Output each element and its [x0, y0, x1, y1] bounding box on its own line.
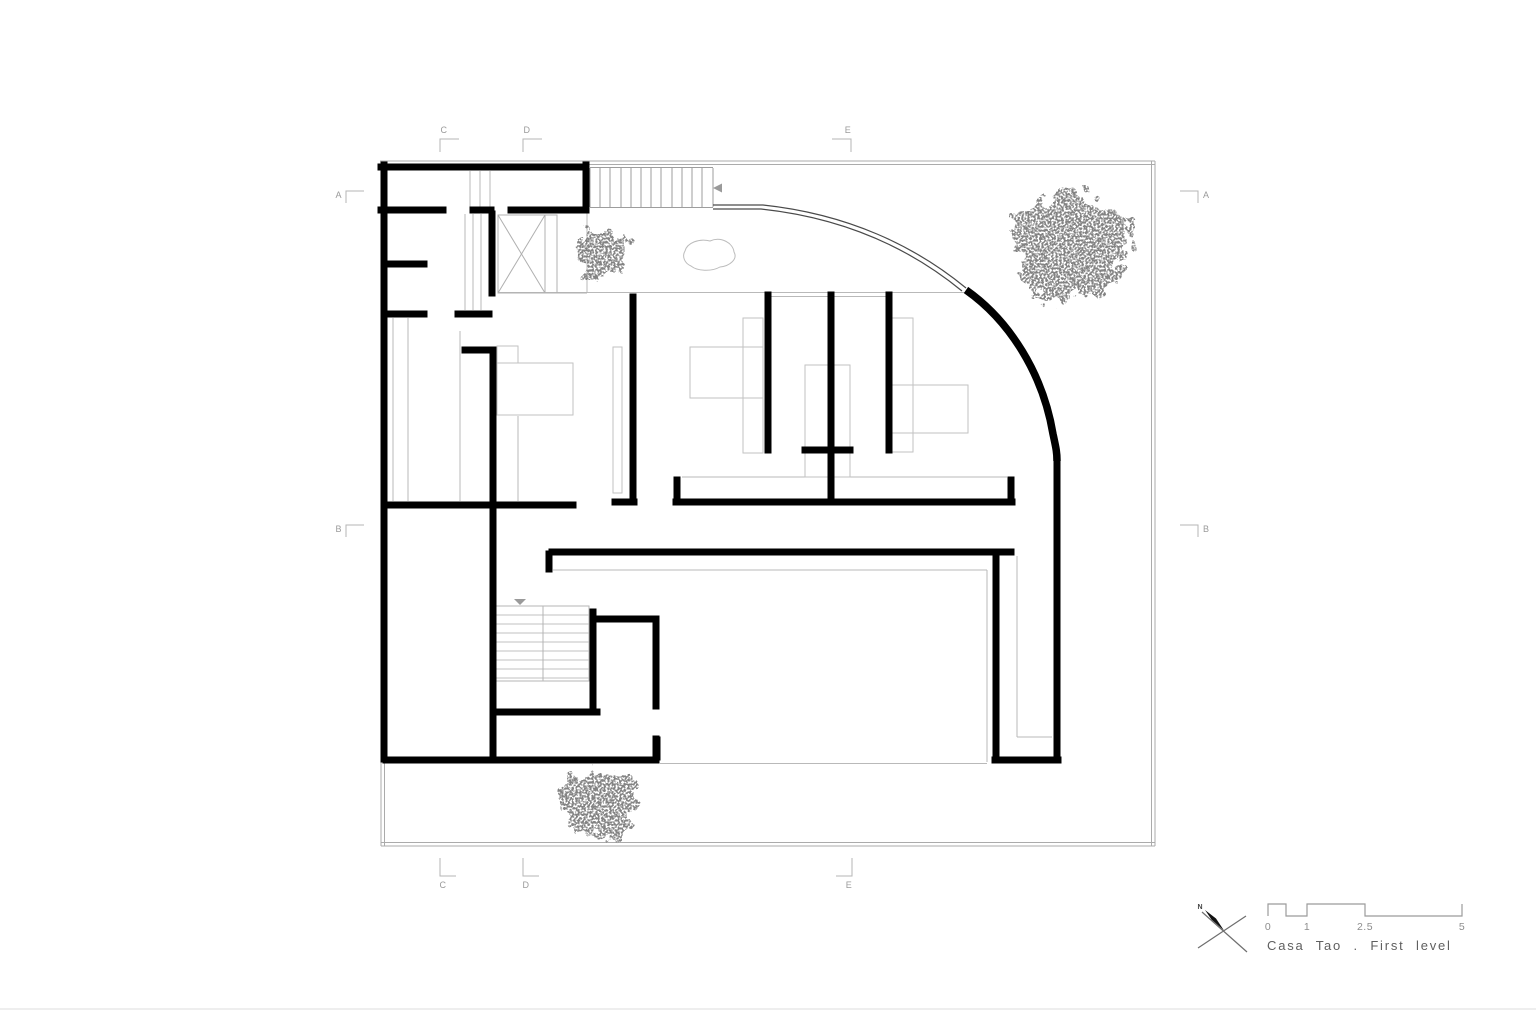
- closet-lines-mid: [465, 214, 481, 310]
- scale-tick: 2.5: [1357, 921, 1373, 933]
- floor-plan-svg: C D E C D E A B: [0, 0, 1536, 1011]
- stone-outline: [684, 239, 735, 270]
- furniture-rect: [613, 347, 622, 493]
- grid-marker-bottom-d: D: [523, 858, 540, 890]
- bath-fixture-rect: [497, 363, 573, 415]
- site-edge-left-lower: [381, 762, 385, 846]
- scale-tick: 1: [1304, 921, 1310, 933]
- grid-label: B: [1203, 524, 1210, 534]
- elevator-x-brace: [498, 215, 545, 293]
- furniture-rect: [690, 347, 763, 398]
- grid-marker-bottom-e: E: [836, 858, 852, 890]
- marker-bracket: [346, 525, 364, 537]
- elevator-duct: [545, 215, 557, 293]
- site-boundary: [0, 161, 1536, 1009]
- grid-label: D: [524, 125, 531, 135]
- grid-marker-right-a: A: [1180, 190, 1210, 203]
- grid-label: D: [523, 880, 530, 890]
- grid-marker-top-e: E: [832, 125, 851, 152]
- marker-bracket: [1180, 525, 1198, 537]
- furniture-rect: [743, 318, 763, 453]
- exterior-stairs: [590, 168, 722, 208]
- marker-bracket: [440, 139, 459, 152]
- north-label: N: [1197, 904, 1202, 911]
- drawing-sheet: C D E C D E A B: [0, 0, 1536, 1011]
- marker-bracket: [836, 858, 852, 876]
- marker-bracket: [1180, 191, 1198, 203]
- north-arrow-cross: [1198, 912, 1247, 952]
- tree-small-top: [575, 232, 628, 278]
- grid-marker-bottom-c: C: [440, 858, 457, 890]
- scale-bar-profile: [1268, 904, 1462, 916]
- marker-bracket: [346, 191, 364, 203]
- planter-inner-line: [1017, 556, 1052, 737]
- grid-marker-right-b: B: [1180, 524, 1210, 537]
- marker-bracket: [523, 858, 539, 876]
- closet-lines-top-room: [470, 171, 490, 207]
- marker-bracket: [523, 139, 542, 152]
- grid-marker-top-c: C: [440, 125, 459, 152]
- grid-label: A: [335, 190, 342, 200]
- stair-direction-arrow-icon: [713, 184, 722, 193]
- bath-fixture-rect: [497, 346, 518, 363]
- site-edge-right: [1152, 161, 1156, 846]
- scale-bar: 0 1 2.5 5: [1265, 904, 1465, 933]
- north-arrow: N: [1197, 904, 1247, 952]
- room-partition-lines: [393, 318, 460, 501]
- curved-wall: [966, 290, 1057, 461]
- marker-bracket: [440, 858, 456, 876]
- stair-treads: [590, 168, 713, 207]
- stair-direction-arrow-icon: [514, 599, 526, 605]
- grid-marker-top-d: D: [523, 125, 542, 152]
- site-edge-bottom: [381, 843, 1155, 847]
- grid-label: E: [845, 125, 852, 135]
- furniture-rect: [892, 385, 968, 433]
- marker-bracket: [832, 139, 851, 152]
- furniture: [497, 318, 968, 493]
- grid-label: B: [335, 524, 342, 534]
- railing-line-inner: [713, 209, 962, 291]
- interior-stairs: [496, 599, 589, 681]
- wall-lines: [381, 165, 1058, 760]
- grid-label: C: [441, 125, 448, 135]
- walls: [381, 165, 1058, 760]
- tree-large-right: [1013, 189, 1129, 302]
- grid-label: A: [1203, 190, 1210, 200]
- grid-marker-left-a: A: [335, 190, 364, 203]
- plan-title: Casa Tao . First level: [1267, 938, 1452, 953]
- railing-line-outer: [713, 205, 966, 288]
- tree-bottom: [560, 773, 638, 839]
- north-arrow-needle: [1205, 910, 1224, 931]
- elevator-shaft: [498, 215, 587, 293]
- scale-tick: 5: [1459, 921, 1465, 933]
- grid-label: E: [846, 880, 853, 890]
- grid-marker-left-b: B: [335, 524, 364, 537]
- grid-label: C: [440, 880, 447, 890]
- trees: [560, 189, 1129, 839]
- curved-railing: [713, 205, 966, 291]
- scale-tick: 0: [1265, 921, 1271, 933]
